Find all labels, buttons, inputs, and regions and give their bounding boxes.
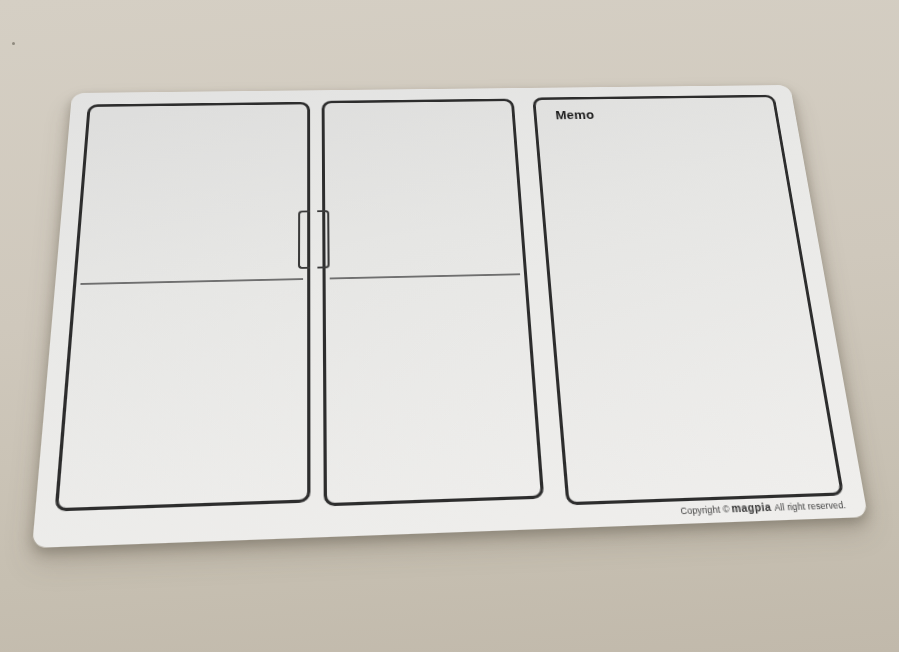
- copyright-suffix: All right reserved.: [774, 500, 847, 513]
- panel-divider-line: [330, 273, 520, 279]
- photo-background: Memo Copyright ©magpiaAll right reserved…: [0, 0, 899, 652]
- panel-middle: [322, 99, 545, 507]
- fold-handle-right-bracket: [317, 210, 329, 268]
- panel-left: [55, 102, 311, 512]
- whiteboard: Memo Copyright ©magpiaAll right reserved…: [32, 85, 868, 548]
- panel-divider-line: [80, 278, 303, 284]
- dust-speck: [12, 42, 15, 45]
- copyright-text: Copyright ©magpiaAll right reserved.: [680, 499, 847, 517]
- brand-name: magpia: [731, 501, 772, 514]
- memo-label: Memo: [555, 108, 595, 122]
- fold-handle-left-bracket: [298, 210, 310, 268]
- panel-memo: Memo: [532, 95, 844, 506]
- copyright-prefix: Copyright ©: [680, 504, 730, 516]
